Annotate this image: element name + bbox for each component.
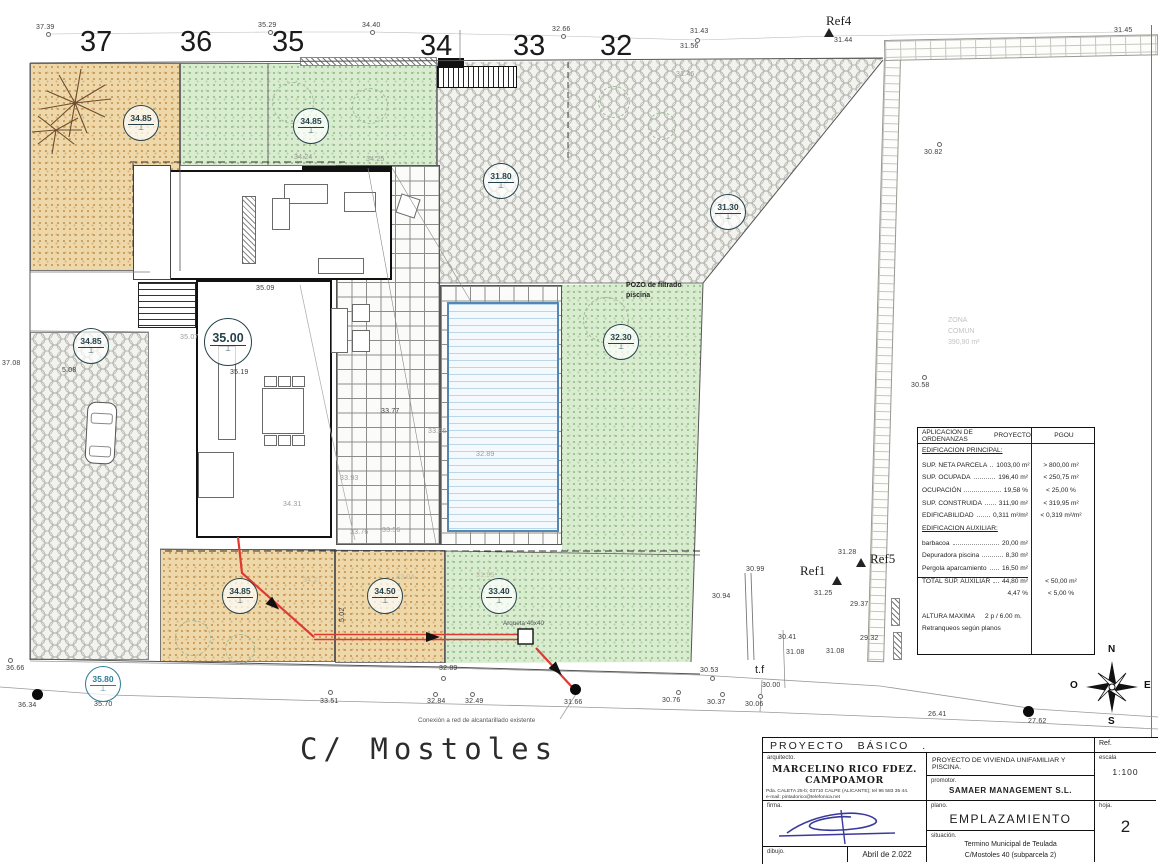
elevation-circle: 34.50⊥: [367, 578, 403, 614]
spot-elevation: 30.76: [662, 697, 681, 704]
sofa: [272, 198, 290, 230]
spot-elevation: 26.41: [928, 711, 947, 718]
stone-wall-east: [867, 58, 901, 662]
spot-elevation: 30.58: [911, 382, 930, 389]
spot-elevation: 30.00: [762, 682, 781, 689]
table-section: EDIFICACION PRINCIPAL:: [918, 444, 1094, 459]
table-retranqueos: Retranqueos según planos: [918, 625, 1094, 637]
survey-tick: [922, 375, 927, 380]
table-header-left: APLICACION DE ORDENANZAS: [918, 429, 994, 443]
spot-elevation: 30.53: [700, 667, 719, 674]
signature-cell: firma.: [763, 801, 926, 847]
elevation-circle: 31.80⊥: [483, 163, 519, 199]
survey-tick: [433, 692, 438, 697]
dimension-label: 33.04: [396, 574, 415, 581]
tree: [352, 88, 388, 124]
stairs: [138, 282, 196, 328]
plot-number-33: 33: [513, 30, 545, 63]
kitchen-counter: [198, 452, 234, 498]
compass-north: N: [1108, 644, 1115, 655]
tree: [648, 112, 676, 140]
table-header: APLICACION DE ORDENANZAS PROYECTO PGOU: [918, 428, 1094, 444]
spot-elevation: 31.08: [826, 648, 845, 655]
ref5-label: Ref5: [870, 551, 895, 567]
sheet-border: [1151, 25, 1152, 737]
table-header-proyecto: PROYECTO: [994, 432, 1034, 439]
plot-number-35: 35: [272, 26, 304, 59]
scale-value: 1:100: [1095, 767, 1156, 777]
wall-post-hatch: [891, 598, 900, 626]
table-header-pgou: PGOU: [1034, 432, 1094, 439]
elevation-circle-street: 35.80⊥: [85, 666, 121, 702]
survey-dot: [1023, 706, 1034, 717]
swimming-pool: [447, 302, 559, 532]
roof-edge-bar: [302, 166, 392, 171]
spot-elevation: 31.66: [564, 699, 583, 706]
dimension-label: 31.95: [476, 572, 495, 579]
paved-area-left: [30, 332, 149, 660]
terrace-sofa: [331, 308, 348, 353]
spot-elevation: 31.28: [838, 549, 857, 556]
chair: [278, 435, 291, 446]
ref4-label: Ref4: [826, 13, 851, 29]
survey-tick: [8, 658, 13, 663]
elevation-circle: 32.30⊥: [603, 324, 639, 360]
spot-elevation: 32.84: [427, 698, 446, 705]
wall-post-hatch: [893, 632, 902, 660]
tf-label: t.f: [755, 664, 764, 676]
stone-wall-north: [884, 34, 1158, 61]
spot-elevation: 30.82: [924, 149, 943, 156]
spot-elevation: 34.40: [362, 22, 381, 29]
tree: [598, 86, 630, 118]
spot-elevation: 37.39: [36, 24, 55, 31]
plot-number-37: 37: [80, 26, 112, 59]
promoter-cell: promotor. SAMAER MANAGEMENT S.L.: [926, 776, 1094, 801]
house-entry-block: [133, 165, 171, 280]
arqueta-label: Arqueta 40x40: [503, 620, 544, 627]
spot-elevation: 33.51: [320, 698, 339, 705]
sofa: [284, 184, 328, 204]
tree: [175, 620, 211, 656]
chair: [292, 376, 305, 387]
spot-elevation: 35.29: [258, 22, 277, 29]
chair: [278, 376, 291, 387]
spot-elevation: 33.56: [382, 527, 401, 534]
zona-comun-label: ZONACOMUN390,90 m²: [948, 315, 980, 349]
survey-tick: [561, 34, 566, 39]
hatched-strip-top: [300, 57, 437, 66]
table-row: barbacoa20,00 m²: [918, 537, 1094, 550]
spot-elevation: 29.37: [850, 601, 869, 608]
compass-west: O: [1070, 680, 1078, 691]
coffee-table: [344, 192, 376, 212]
spot-elevation: 35.70: [94, 701, 113, 708]
sofa: [318, 258, 364, 274]
scale-cell: escala 1:100: [1094, 753, 1156, 801]
pergola-parking: [437, 66, 517, 88]
spot-elevation: 31.44: [834, 37, 853, 44]
spot-elevation: 34.24: [294, 154, 313, 161]
table-row: 4,47 % < 5,00 %: [918, 587, 1094, 600]
chair: [264, 435, 277, 446]
spot-elevation: 34.31: [283, 501, 302, 508]
elevation-circle: 33.40⊥: [481, 578, 517, 614]
wardrobe: [242, 196, 256, 264]
chair: [264, 376, 277, 387]
spot-elevation: 33.77: [381, 408, 400, 415]
architect-name: MARCELINO RICO FDEZ. CAMPOAMOR: [763, 764, 926, 786]
spot-elevation: 30.37: [707, 699, 726, 706]
survey-tick: [720, 692, 725, 697]
spot-elevation: 32.66: [552, 26, 571, 33]
spot-elevation: 33.86: [428, 428, 447, 435]
plot-number-36: 36: [180, 26, 212, 59]
spot-elevation: 33.76: [350, 529, 369, 536]
architect-address: Pda. CALETA 25-b; 03710 CALPE (ALICANTE)…: [763, 789, 926, 802]
tree: [225, 634, 255, 664]
spot-elevation: 33.93: [340, 475, 359, 482]
spot-elevation: 31.08: [786, 649, 805, 656]
spot-elevation: 32.89: [476, 451, 495, 458]
date-cell: Abril de 2.022: [848, 847, 926, 862]
spot-elevation: 35.09: [256, 285, 275, 292]
elevation-circle: 34.85⊥: [123, 105, 159, 141]
plot-number-34: 34: [420, 30, 452, 63]
table-row: Pergola aparcamiento16,50 m²: [918, 562, 1094, 575]
survey-dot: [32, 689, 43, 700]
street-name: C/ Mostoles: [300, 732, 558, 766]
spot-elevation: 31.46: [676, 71, 695, 78]
plot-number-32: 32: [600, 30, 632, 63]
spot-elevation: 27.62: [1028, 718, 1047, 725]
survey-tick: [710, 676, 715, 681]
architect-label: arquitecto.: [767, 755, 795, 761]
terrace-table: [352, 304, 370, 322]
survey-tick: [370, 30, 375, 35]
chair: [292, 435, 305, 446]
elevation-circle: 34.85⊥: [73, 328, 109, 364]
elevation-circle: 31.30⊥: [710, 194, 746, 230]
table-row: OCUPACIÓN19,58 % < 25,00 %: [918, 484, 1094, 497]
table-row: SUP. OCUPADA196,40 m² < 250,75 m²: [918, 472, 1094, 485]
ref1-label: Ref1: [800, 563, 825, 579]
dining-table: [262, 388, 304, 434]
spot-elevation: 34.25: [366, 156, 385, 163]
table-row: SUP. CONSTRUIDA311,90 m² < 319,95 m²: [918, 497, 1094, 510]
spot-elevation: 36.34: [18, 702, 37, 709]
dibujo-cell: dibujo.: [763, 847, 848, 862]
table-section: EDIFICACION AUXILIAR:: [918, 522, 1094, 537]
survey-tick: [470, 692, 475, 697]
architect-cell: arquitecto. MARCELINO RICO FDEZ. CAMPOAM…: [763, 753, 926, 801]
elevation-circle: 34.85⊥: [222, 578, 258, 614]
spot-elevation: 35.19: [230, 369, 249, 376]
signature: [765, 803, 925, 847]
ref-cell: Ref.: [1094, 738, 1156, 753]
table-row: EDIFICABILIDAD0,311 m²/m² < 0,319 m²/m²: [918, 509, 1094, 522]
dimension-label: 5.08: [62, 367, 76, 374]
table-row-total: TOTAL SUP. AUXILIAR44,80 m² < 50,00 m²: [918, 575, 1094, 588]
survey-tick: [46, 32, 51, 37]
spot-elevation: 31.43: [690, 28, 709, 35]
survey-tick: [758, 694, 763, 699]
spot-elevation: 31.45: [1114, 27, 1133, 34]
compass-east: E: [1144, 680, 1151, 691]
sheet-number-cell: hoja. 2: [1094, 801, 1156, 862]
spot-elevation: 31.25: [814, 590, 833, 597]
location-cell: situación. Termino Municipal de TeuladaC…: [926, 831, 1094, 862]
title-block: PROYECTO BÁSICO . Ref. arquitecto. MARCE…: [762, 737, 1158, 864]
plan-name: EMPLAZAMIENTO: [927, 812, 1094, 826]
spot-elevation: 37.08: [2, 360, 21, 367]
spot-elevation: 29.32: [860, 635, 879, 642]
spot-elevation: 30.94: [712, 593, 731, 600]
spot-elevation: 32.49: [465, 698, 484, 705]
terrace-chair: [352, 330, 370, 352]
dimension-label: 5.02: [339, 608, 346, 622]
spot-elevation: 30.41: [778, 634, 797, 641]
compass-south: S: [1108, 716, 1115, 727]
survey-tick: [937, 142, 942, 147]
spot-elevation: 30.06: [745, 701, 764, 708]
ordinance-table: APLICACION DE ORDENANZAS PROYECTO PGOU E…: [917, 427, 1095, 655]
sheet-number: 2: [1095, 817, 1156, 837]
survey-dot: [570, 684, 581, 695]
dimension-label: 34.27: [303, 577, 322, 584]
spot-elevation: 32.89: [439, 665, 458, 672]
sewer-note: Conexión a red de alcantarillado existen…: [418, 717, 535, 724]
spot-elevation: 31.56: [680, 43, 699, 50]
location-text: Termino Municipal de TeuladaC/Mostoles 4…: [927, 840, 1094, 861]
title-block-header: PROYECTO BÁSICO .: [763, 738, 1094, 753]
promoter-name: SAMAER MANAGEMENT S.L.: [927, 786, 1094, 795]
survey-tick: [676, 690, 681, 695]
table-altura: ALTURA MAXIMA2 p / 6.00 m.: [918, 613, 1094, 625]
survey-tick: [328, 690, 333, 695]
pozo-label: POZO de filtradopiscina: [626, 281, 682, 301]
plan-name-cell: plano. EMPLAZAMIENTO: [926, 801, 1094, 831]
spot-elevation: 30.99: [746, 566, 765, 573]
elevation-circle: 34.85⊥: [293, 108, 329, 144]
spot-elevation: 35.07: [180, 334, 199, 341]
survey-tick: [441, 676, 446, 681]
table-row: SUP. NETA PARCELA1003,00 m² > 800,00 m²: [918, 459, 1094, 472]
project-description-cell: PROYECTO DE VIVIENDA UNIFAMILIAR Y PISCI…: [926, 753, 1094, 776]
site-plan-sheet: 37 36 35 34 33 32 Ref4 Ref1 Ref5 34.85⊥ …: [0, 0, 1158, 864]
compass-rose: [1082, 657, 1142, 717]
spot-elevation: 36.66: [6, 665, 25, 672]
table-row: Depuradora piscina8,30 m²: [918, 550, 1094, 563]
table-divider: [1031, 428, 1032, 654]
car: [84, 401, 117, 464]
elevation-circle-main: 35.00⊥: [204, 318, 252, 366]
